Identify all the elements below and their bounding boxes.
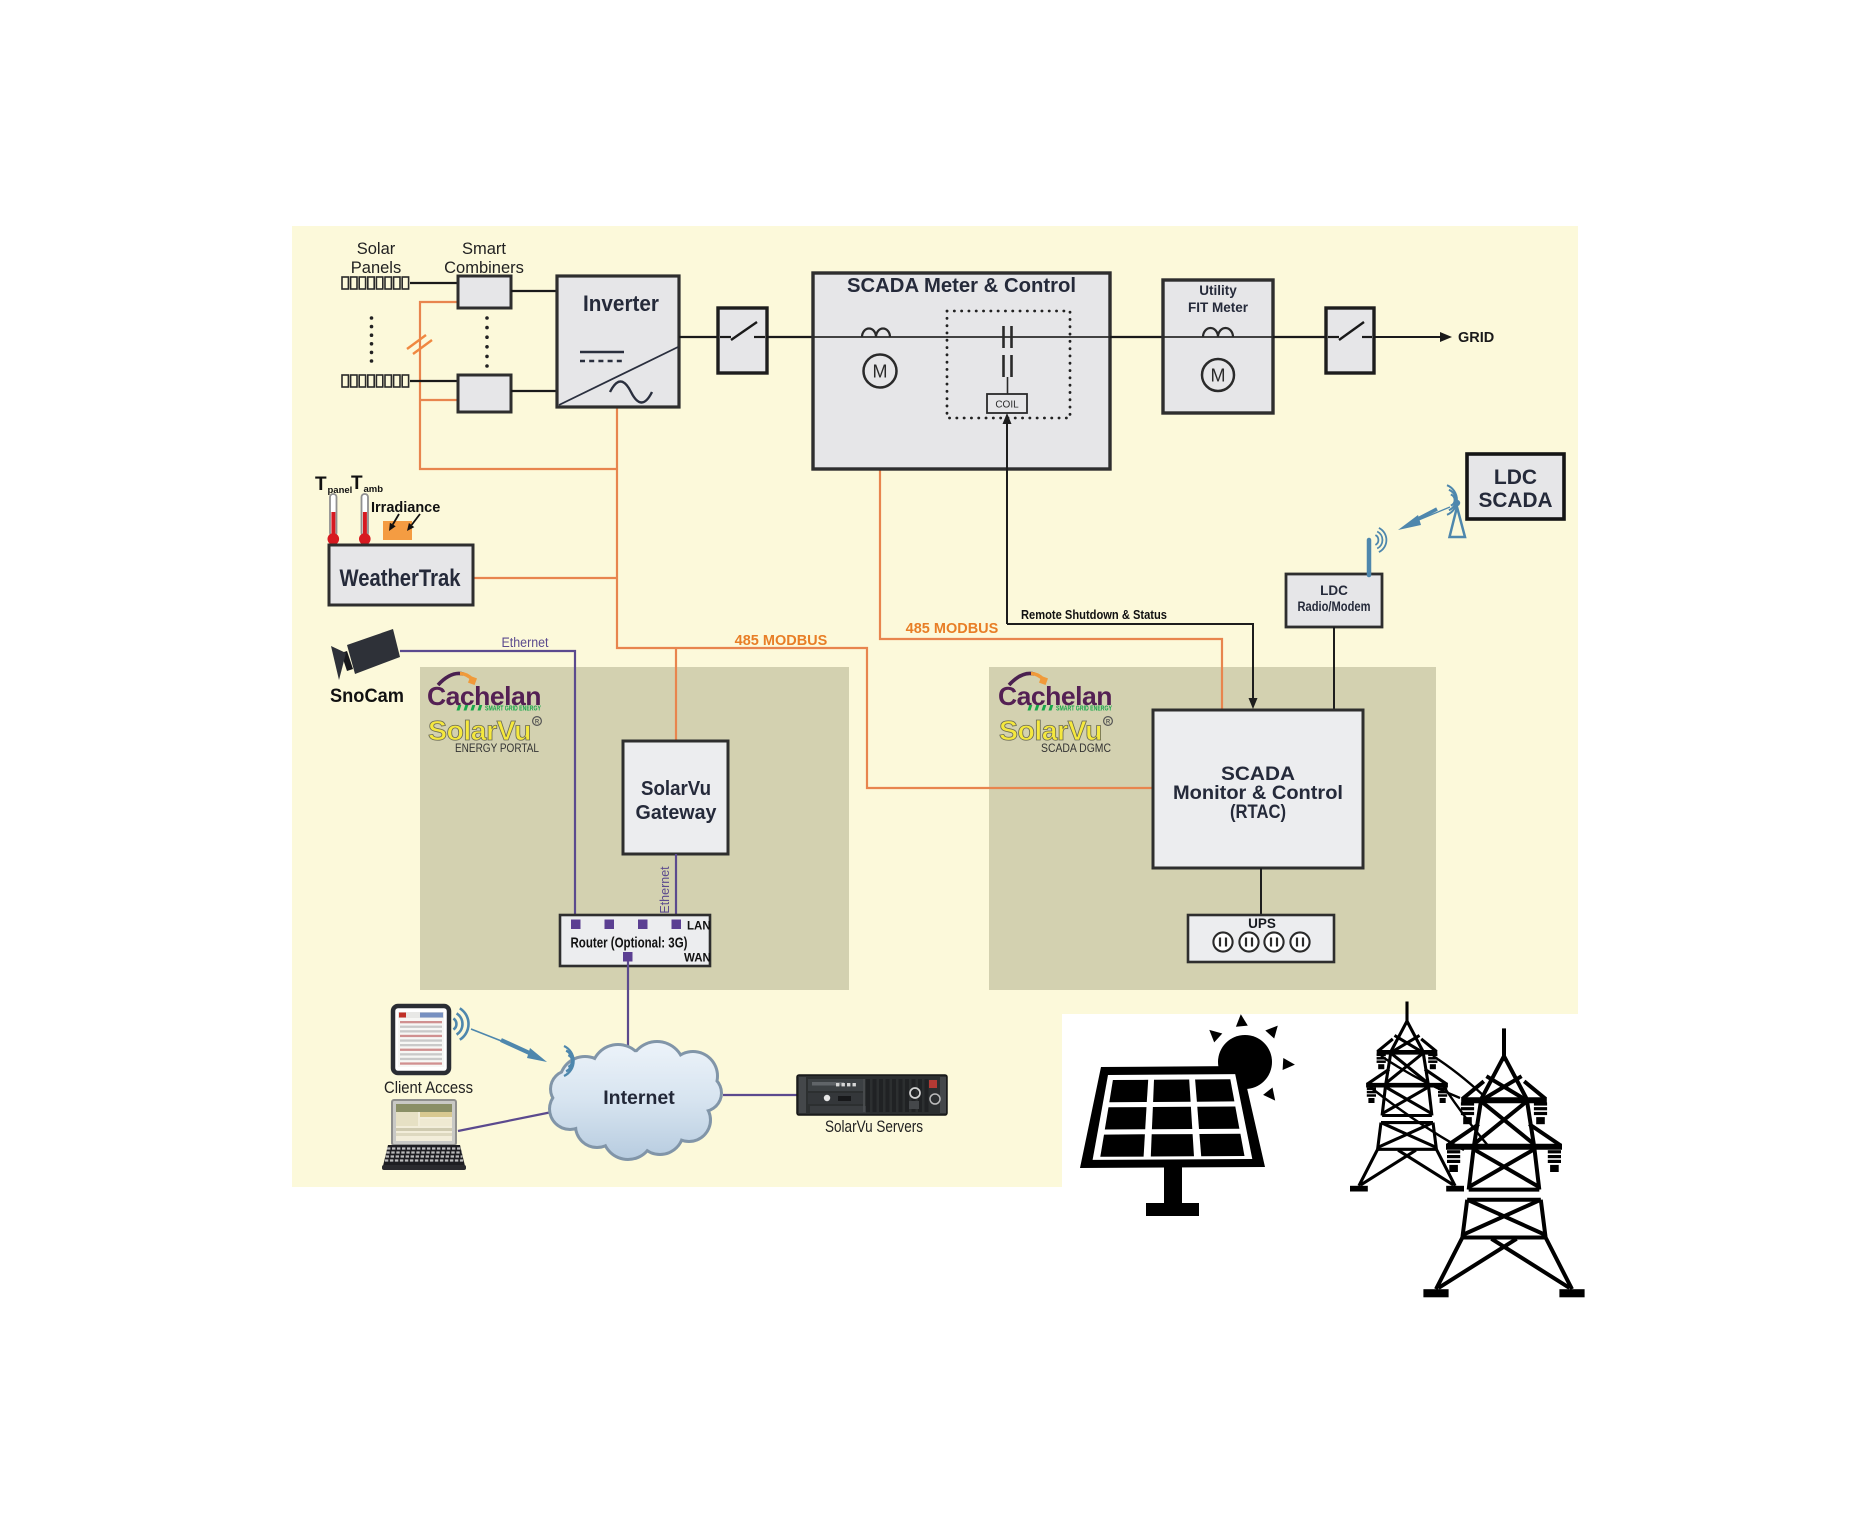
svg-text:Irradiance: Irradiance	[371, 500, 440, 516]
svg-text:LAN: LAN	[687, 921, 711, 933]
svg-text:SnoCam: SnoCam	[330, 686, 404, 707]
svg-text:SCADA: SCADA	[1479, 489, 1553, 512]
svg-text:M: M	[873, 362, 888, 382]
svg-text:Smart: Smart	[462, 240, 506, 258]
svg-text:Inverter: Inverter	[583, 291, 659, 316]
svg-text:SolarVu: SolarVu	[428, 715, 531, 746]
svg-text:SolarVu: SolarVu	[999, 715, 1102, 746]
svg-text:LDC: LDC	[1494, 466, 1537, 489]
svg-text:SolarVu Servers: SolarVu Servers	[825, 1118, 923, 1136]
svg-text:T: T	[351, 473, 363, 494]
svg-text:SCADA Meter & Control: SCADA Meter & Control	[847, 274, 1076, 297]
svg-text:Utility: Utility	[1199, 283, 1237, 298]
svg-text:SCADA DGMC: SCADA DGMC	[1041, 743, 1111, 755]
svg-text:COIL: COIL	[995, 400, 1019, 411]
svg-text:Panels: Panels	[351, 259, 401, 277]
svg-text:FIT Meter: FIT Meter	[1188, 300, 1249, 315]
svg-text:(RTAC): (RTAC)	[1230, 802, 1286, 823]
svg-text:ENERGY PORTAL: ENERGY PORTAL	[455, 743, 540, 755]
svg-text:SCADA: SCADA	[1221, 764, 1295, 785]
svg-text:Ethernet: Ethernet	[502, 635, 549, 650]
svg-text:T: T	[315, 474, 327, 495]
svg-text:WeatherTrak: WeatherTrak	[340, 565, 462, 592]
svg-text:Monitor & Control: Monitor & Control	[1173, 783, 1343, 804]
svg-text:Client Access: Client Access	[384, 1079, 473, 1097]
svg-text:Radio/Modem: Radio/Modem	[1298, 599, 1371, 614]
svg-text:485 MODBUS: 485 MODBUS	[735, 633, 828, 649]
svg-text:WAN: WAN	[684, 953, 711, 965]
svg-text:Remote Shutdown & Status: Remote Shutdown & Status	[1021, 608, 1167, 622]
svg-text:R: R	[535, 720, 540, 726]
svg-text:485 MODBUS: 485 MODBUS	[906, 621, 999, 637]
svg-text:M: M	[1211, 366, 1226, 386]
svg-text:SolarVu: SolarVu	[641, 778, 711, 800]
svg-text:LDC: LDC	[1320, 583, 1348, 598]
svg-text:UPS: UPS	[1248, 916, 1276, 931]
svg-text:Router (Optional: 3G): Router (Optional: 3G)	[571, 935, 688, 952]
svg-text:Solar: Solar	[357, 240, 396, 258]
svg-text:SMART GRID ENERGY: SMART GRID ENERGY	[1056, 704, 1112, 713]
svg-text:SMART GRID ENERGY: SMART GRID ENERGY	[485, 704, 541, 713]
svg-text:Internet: Internet	[603, 1087, 675, 1109]
svg-text:Gateway: Gateway	[636, 802, 718, 824]
svg-text:Ethernet: Ethernet	[658, 866, 672, 914]
svg-text:Combiners: Combiners	[444, 259, 524, 277]
svg-text:R: R	[1106, 720, 1111, 726]
svg-text:GRID: GRID	[1458, 330, 1494, 346]
